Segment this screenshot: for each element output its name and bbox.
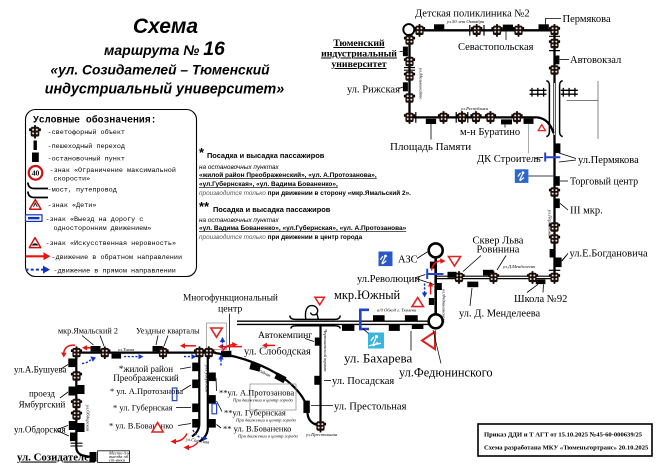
svg-text:-знак «Ограничение максимально: -знак «Ограничение максимальной	[50, 166, 176, 175]
svg-text:Ровинина: Ровинина	[477, 245, 520, 256]
svg-text:ул.Е.Богдановича: ул.Е.Богдановича	[570, 249, 648, 260]
svg-text:Преображенский: Преображенский	[113, 373, 179, 383]
svg-text:Ямбургский: Ямбургский	[19, 400, 66, 410]
svg-text:«жилой район Преображенский»,: «жилой район Преображенский», «ул. А.Про…	[199, 171, 377, 179]
svg-text:а/д Обход г. Тюмени: а/д Обход г. Тюмени	[377, 308, 417, 313]
svg-text:ул.А.Бушуева: ул.А.Бушуева	[14, 365, 66, 375]
svg-text:университет: университет	[331, 59, 386, 70]
svg-text:мкр.Ямальский 2: мкр.Ямальский 2	[58, 327, 118, 336]
svg-text:При движении в центр города: При движении в центр города	[235, 418, 297, 423]
svg-text:Уездные кварталы: Уездные кварталы	[136, 327, 200, 336]
svg-text:При движении в центр города: При движении в центр города	[232, 398, 294, 403]
svg-text:**ул. А.Протозанова: **ул. А.Протозанова	[219, 388, 294, 398]
svg-text:маршрута № 16: маршрута № 16	[104, 38, 225, 60]
svg-text:III мкр.: III мкр.	[570, 206, 603, 217]
svg-text:ул.Мельникайте: ул.Мельникайте	[419, 67, 424, 99]
svg-text:Тюменский: Тюменский	[333, 38, 385, 49]
svg-text:центр: центр	[218, 304, 242, 315]
svg-text:Приказ ДДИ и Т АГТ от 15.10.20: Приказ ДДИ и Т АГТ от 15.10.2025 №45-60-…	[484, 432, 643, 439]
svg-text:ул. Созидателей: ул. Созидателей	[17, 452, 95, 464]
svg-text:* ул. В.Бованенко: * ул. В.Бованенко	[109, 421, 173, 431]
svg-text:производится только при движен: производится только при движении в сторо…	[199, 189, 411, 197]
svg-text:«ул.Губернская», «ул. Вадима Б: «ул.Губернская», «ул. Вадима Бованенко»,	[199, 180, 338, 188]
svg-text:Посадка и высадка пассажиров: Посадка и высадка пассажиров	[213, 205, 331, 214]
svg-text:проезд: проезд	[29, 389, 55, 399]
svg-text:АЗС: АЗС	[398, 255, 418, 266]
svg-text:ул.Республики: ул.Республики	[460, 106, 489, 111]
svg-text:ул.Пермякова: ул.Пермякова	[578, 155, 639, 166]
svg-text:Автокемпинг: Автокемпинг	[258, 330, 312, 341]
svg-text:ул. Престольная: ул. Престольная	[334, 402, 407, 413]
svg-text:Червишевский тракт: Червишевский тракт	[323, 329, 328, 372]
svg-text:Условные обозначения:: Условные обозначения:	[33, 115, 156, 126]
svg-text:на остановочных пунктах: на остановочных пунктах	[199, 217, 280, 224]
svg-text:ул.Федюнинского: ул.Федюнинского	[442, 288, 447, 323]
svg-text:производится только при движен: производится только при движении в центр…	[199, 233, 363, 241]
svg-text:индустриальный университет»: индустриальный университет»	[45, 82, 285, 98]
svg-text:Детская поликлиника №2: Детская поликлиника №2	[415, 9, 530, 20]
svg-text:Посадка и высадка пассажиров: Посадка и высадка пассажиров	[207, 151, 325, 160]
svg-text:-знак «Искусственная неровност: -знак «Искусственная неровность»	[46, 240, 177, 248]
svg-text:**ул. Губернская: **ул. Губернская	[224, 408, 286, 418]
svg-text:ул. Слободская: ул. Слободская	[244, 347, 311, 358]
svg-text:**: **	[199, 199, 210, 214]
svg-text:Севастопольская: Севастопольская	[458, 42, 534, 53]
svg-text:* ул. А.Протозанова: * ул. А.Протозанова	[110, 386, 183, 396]
svg-text:-остановочный пункт: -остановочный пункт	[48, 155, 126, 164]
svg-text:-мост, путепровод: -мост, путепровод	[48, 186, 117, 194]
svg-text:«ул. Вадима Бованенко», «ул.Гу: «ул. Вадима Бованенко», «ул.Губернская»,…	[199, 224, 407, 232]
svg-text:ул. Бахарева: ул. Бахарева	[344, 351, 412, 366]
svg-text:-светофорный объект: -светофорный объект	[48, 128, 126, 137]
svg-text:Пермякова: Пермякова	[563, 14, 611, 25]
svg-text:ул. Посадская: ул. Посадская	[332, 376, 394, 387]
svg-text:* ул. Губернская: * ул. Губернская	[113, 403, 173, 413]
svg-text:ул. Рижская: ул. Рижская	[347, 85, 400, 96]
svg-text:ул.Обдорская: ул.Обдорская	[86, 404, 91, 431]
svg-text:индустриальный: индустриальный	[321, 49, 397, 60]
svg-text:мкр.Южный: мкр.Южный	[334, 288, 401, 302]
svg-text:Автовокзал: Автовокзал	[570, 55, 621, 66]
svg-text:Схема: Схема	[133, 15, 199, 38]
svg-text:При движении в центр города: При движении в центр города	[237, 434, 299, 439]
svg-text:ул.Тихая: ул.Тихая	[117, 347, 134, 352]
svg-text:-знак «Дети»: -знак «Дети»	[48, 202, 97, 210]
svg-text:ул.50 лет Октября: ул.50 лет Октября	[446, 19, 484, 24]
svg-text:-пешеходный переход: -пешеходный переход	[48, 142, 126, 151]
svg-text:на остановочных пунктах: на остановочных пунктах	[199, 164, 280, 171]
svg-text:Школа №92: Школа №92	[514, 294, 567, 305]
svg-text:Торговый центр: Торговый центр	[570, 177, 638, 188]
svg-text:Площадь Памяти: Площадь Памяти	[390, 141, 471, 153]
svg-text:ул.Д.Менделеева: ул.Д.Менделеева	[502, 264, 536, 269]
svg-text:ДК Строитель: ДК Строитель	[477, 154, 541, 165]
svg-text:-движение в прямом направлении: -движение в прямом направлении	[54, 267, 176, 275]
svg-text:ул.Престольная: ул.Престольная	[305, 432, 337, 437]
svg-text:ул. Д. Менделеева: ул. Д. Менделеева	[459, 309, 541, 320]
svg-text:ст-анки: ст-анки	[109, 457, 126, 462]
svg-text:40: 40	[32, 169, 40, 178]
svg-text:односторонним движением»: односторонним движением»	[54, 225, 152, 233]
svg-text:-знак «Выезд на дорогу с: -знак «Выезд на дорогу с	[46, 216, 144, 224]
svg-text:скорости»: скорости»	[54, 176, 91, 184]
svg-text:Схема разработана МКУ «Тюменьг: Схема разработана МКУ «Тюменьгортранс» 2…	[484, 445, 649, 452]
svg-text:Многофункциональный: Многофункциональный	[183, 293, 278, 304]
svg-text:м-н Буратино: м-н Буратино	[460, 127, 520, 138]
svg-text:«ул. Созидателей – Тюменский: «ул. Созидателей – Тюменский	[50, 63, 270, 78]
svg-text:ул.Федюнинского: ул.Федюнинского	[399, 366, 493, 380]
svg-text:** ул. В.Бованенко: ** ул. В.Бованенко	[223, 424, 291, 434]
svg-text:ул.Революции: ул.Революции	[357, 274, 420, 285]
svg-text:-движение в обратном направлен: -движение в обратном направлении	[52, 253, 183, 262]
